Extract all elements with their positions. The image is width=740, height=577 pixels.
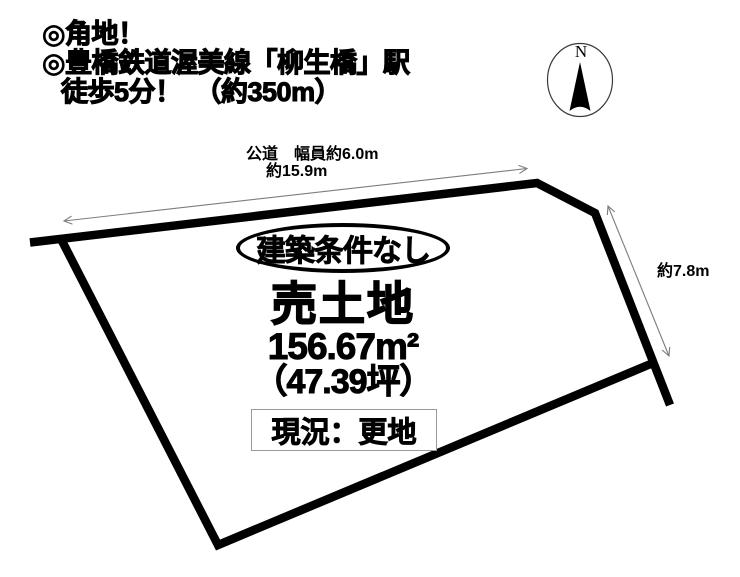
sale-title: 売土地: [236, 281, 450, 328]
condition-badge-label: 建築条件なし: [256, 226, 430, 270]
side-dimension-label: 約7.8m: [657, 257, 709, 281]
land-plot-diagram: ◎角地！ ◎豊橋鉄道渥美線「柳生橋」駅 徒歩5分！ （約350m） N 公道 幅…: [0, 0, 740, 577]
header-note-walk-distance: 徒歩5分！ （約350m）: [42, 78, 410, 107]
header-note-station-line: ◎豊橋鉄道渥美線「柳生橋」駅: [42, 49, 410, 78]
condition-badge: 建築条件なし: [236, 223, 450, 273]
status-box: 現況：更地: [251, 409, 437, 451]
header-note-corner-lot: ◎角地！: [42, 20, 410, 49]
compass-north-label: N: [566, 42, 596, 62]
area-tsubo: （47.39坪）: [236, 364, 450, 401]
status-label: 現況：更地: [271, 409, 416, 451]
header-notes: ◎角地！ ◎豊橋鉄道渥美線「柳生橋」駅 徒歩5分！ （約350m）: [42, 20, 410, 107]
area-sqm: 156.67m²: [236, 328, 450, 365]
frontage-dimension-label: 約15.9m: [266, 157, 327, 181]
